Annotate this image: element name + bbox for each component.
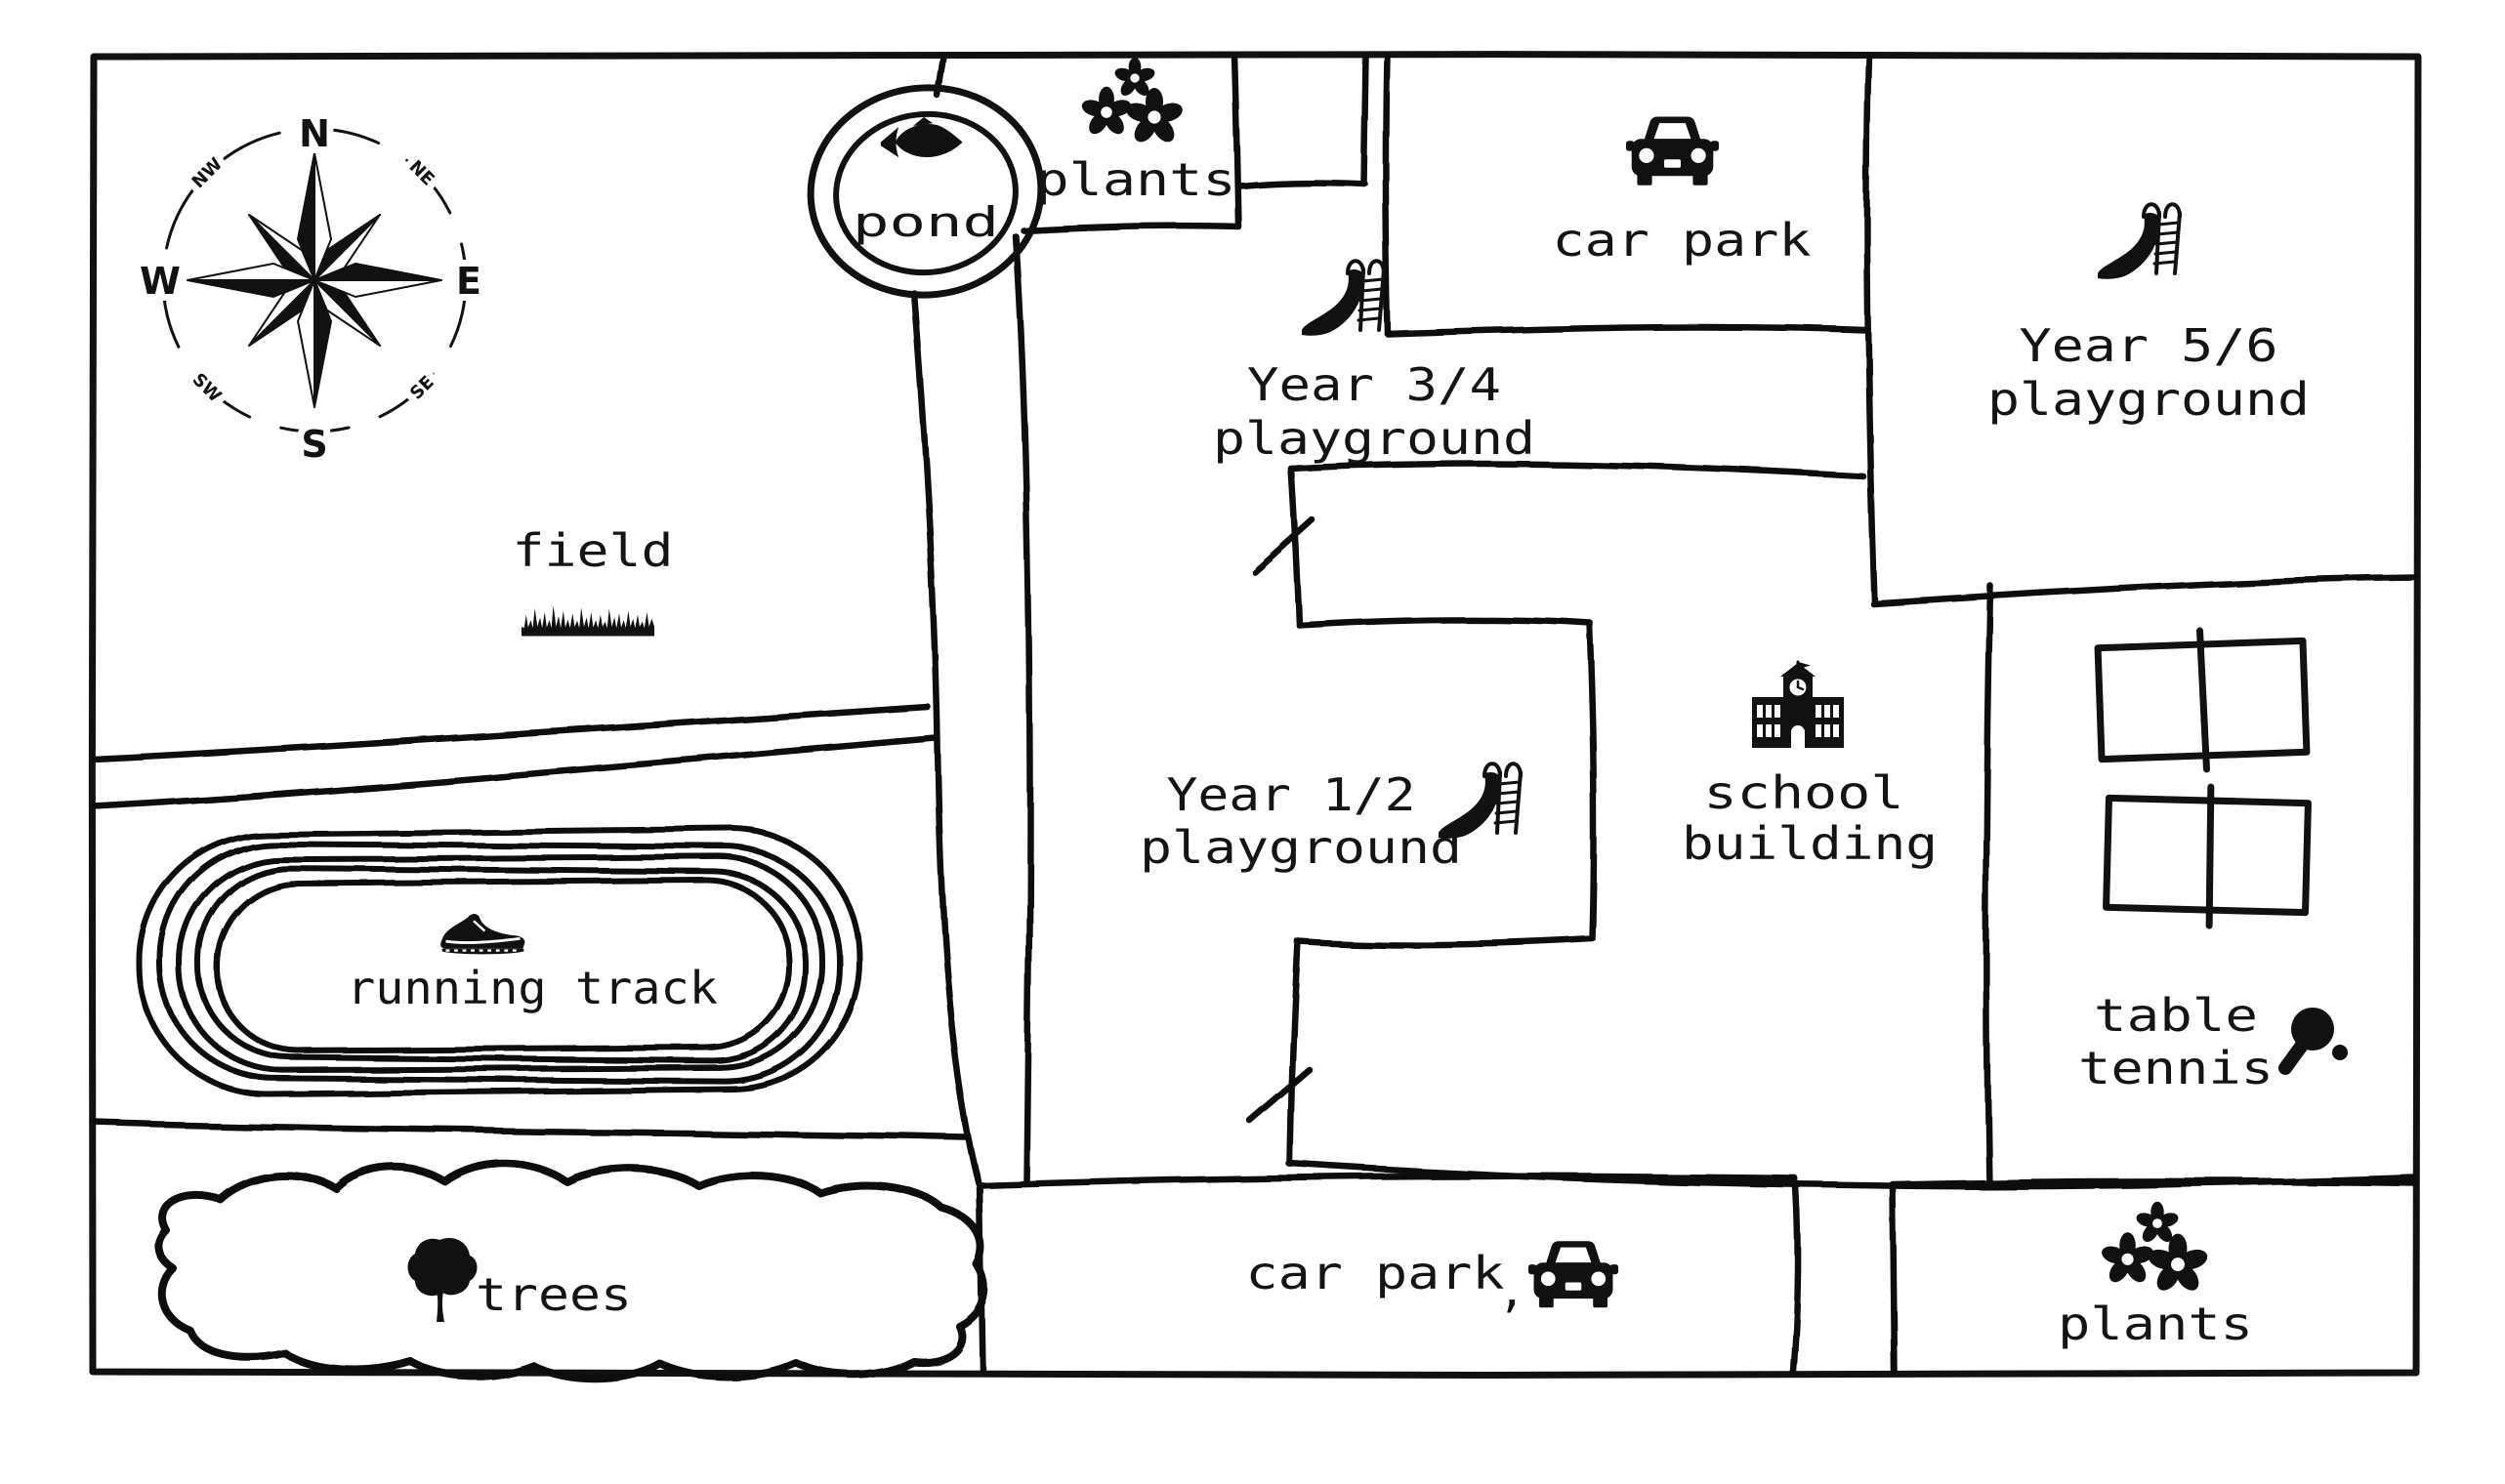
compass-label-e: E (456, 260, 481, 303)
year56-label-line1: Year 5/6 (2020, 319, 2278, 372)
running-track-label: running track (347, 962, 718, 1014)
school-map: N E S W NE SE SW NW pond plants car park… (0, 0, 2505, 1484)
trees-label: trees (476, 1268, 632, 1321)
boundary-carpark-top-left (1386, 56, 1388, 334)
carpark-bottom-comma: , (1498, 1264, 1525, 1317)
school-label-line1: school (1704, 766, 1904, 819)
boundary-plants-bottom-left (1893, 1184, 1895, 1373)
year12-label-line2: playground (1140, 821, 1462, 874)
field-label: field (513, 524, 674, 577)
carpark-bottom-label: car park (1246, 1247, 1505, 1299)
boundary-plants-bottom-top (1893, 1181, 2416, 1184)
plants-bottom-label: plants (2058, 1298, 2253, 1350)
boundary-notch-right (1363, 56, 1365, 184)
school-map-page: N E S W NE SE SW NW pond plants car park… (0, 0, 2505, 1484)
school-label-line2: building (1682, 817, 1938, 870)
compass-label-s: S (301, 423, 327, 466)
year12-label-line1: Year 1/2 (1167, 768, 1416, 821)
table-tennis-label-line1: table (2094, 989, 2258, 1042)
boundary-notch-bottom (1240, 183, 1364, 185)
compass-label-w: W (140, 260, 181, 303)
carpark-top-label: car park (1553, 214, 1812, 267)
year34-label-line1: Year 3/4 (1247, 358, 1501, 411)
table-tennis-label-line2: tennis (2078, 1042, 2274, 1094)
year34-label-line2: playground (1213, 412, 1535, 465)
year56-label-line2: playground (1987, 373, 2310, 426)
pond-label: pond (853, 198, 999, 246)
plants-top-label: plants (1036, 153, 1236, 206)
compass-label-n: N (299, 112, 330, 155)
